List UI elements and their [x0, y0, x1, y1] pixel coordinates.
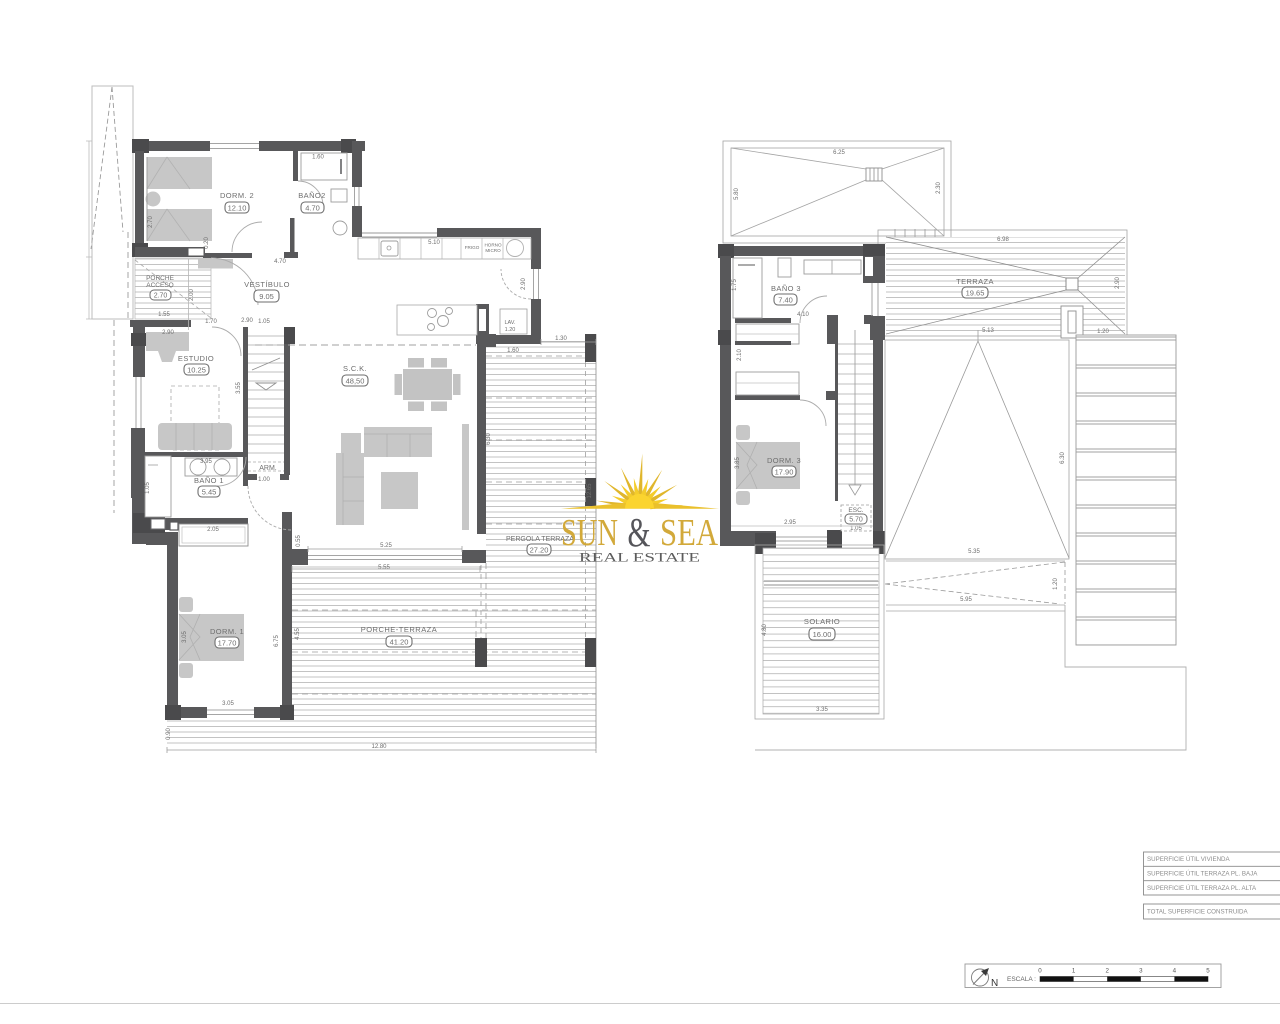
svg-text:3.35: 3.35	[816, 707, 828, 713]
svg-text:REAL ESTATE: REAL ESTATE	[579, 551, 701, 565]
svg-text:5.13: 5.13	[982, 328, 994, 334]
svg-text:SUN: SUN	[561, 512, 618, 554]
svg-text:5.95: 5.95	[960, 597, 972, 603]
svg-text:2.90: 2.90	[521, 278, 527, 290]
svg-text:S.C.K.: S.C.K.	[343, 364, 367, 373]
svg-text:ESCALA :: ESCALA :	[1007, 976, 1036, 983]
svg-text:12.10: 12.10	[228, 204, 247, 213]
svg-text:27.20: 27.20	[530, 546, 549, 555]
svg-text:12.80: 12.80	[371, 744, 387, 750]
svg-text:0.20: 0.20	[204, 237, 210, 249]
svg-text:&: &	[628, 509, 651, 555]
svg-text:1.20: 1.20	[1097, 329, 1109, 335]
svg-text:SUPERFICIE ÚTIL VIVIENDA: SUPERFICIE ÚTIL VIVIENDA	[1147, 856, 1231, 863]
svg-text:2.05: 2.05	[207, 527, 219, 533]
svg-text:1.00: 1.00	[258, 477, 270, 483]
svg-text:5.55: 5.55	[378, 565, 390, 571]
svg-text:FRIGO: FRIGO	[465, 245, 480, 250]
svg-text:1.05: 1.05	[258, 319, 270, 325]
svg-text:48,50: 48,50	[346, 377, 365, 386]
svg-text:0.90: 0.90	[166, 728, 172, 740]
svg-text:4.10: 4.10	[797, 312, 809, 318]
svg-text:DORM. 2: DORM. 2	[220, 191, 254, 200]
svg-text:2: 2	[1105, 968, 1109, 975]
svg-text:3.05: 3.05	[182, 631, 188, 643]
svg-text:5: 5	[1206, 968, 1210, 975]
svg-text:2.90: 2.90	[241, 318, 253, 324]
svg-text:MICRO: MICRO	[485, 248, 501, 253]
svg-text:5.80: 5.80	[734, 188, 740, 200]
svg-text:ESC.: ESC.	[848, 507, 863, 514]
svg-text:PORCHE-TERRAZA: PORCHE-TERRAZA	[361, 625, 438, 634]
svg-text:BAÑO2: BAÑO2	[298, 191, 325, 200]
svg-text:6.75: 6.75	[274, 635, 280, 647]
svg-text:1.05: 1.05	[850, 526, 862, 532]
svg-text:6.30: 6.30	[486, 433, 492, 445]
svg-text:4: 4	[1173, 968, 1177, 975]
svg-text:2.10: 2.10	[737, 349, 743, 361]
svg-text:2.70: 2.70	[148, 216, 154, 228]
svg-text:6.25: 6.25	[833, 150, 845, 156]
svg-text:4.70: 4.70	[305, 204, 320, 213]
svg-text:3.95: 3.95	[200, 459, 212, 465]
svg-text:SOLARIO: SOLARIO	[804, 617, 840, 626]
svg-text:4.80: 4.80	[762, 624, 768, 636]
svg-text:HORNO: HORNO	[484, 243, 502, 248]
svg-text:12.65: 12.65	[587, 483, 593, 499]
svg-text:LAV.: LAV.	[504, 320, 515, 326]
svg-text:2.90: 2.90	[162, 330, 174, 336]
svg-text:5.10: 5.10	[428, 240, 440, 246]
svg-text:10.25: 10.25	[187, 366, 206, 375]
svg-text:6.98: 6.98	[997, 237, 1009, 243]
svg-text:0.55: 0.55	[296, 535, 302, 547]
svg-text:7.40: 7.40	[778, 296, 793, 305]
svg-text:2.95: 2.95	[784, 520, 796, 526]
svg-text:41.20: 41.20	[390, 638, 409, 647]
svg-text:3.85: 3.85	[735, 457, 741, 469]
svg-text:ACCESO: ACCESO	[146, 282, 173, 289]
svg-text:ESTUDIO: ESTUDIO	[178, 354, 214, 363]
svg-text:5.35: 5.35	[968, 549, 980, 555]
svg-text:19.65: 19.65	[966, 289, 985, 298]
svg-text:1.70: 1.70	[205, 319, 217, 325]
svg-text:3.05: 3.05	[222, 701, 234, 707]
svg-text:2.90: 2.90	[1115, 277, 1121, 289]
svg-text:1.60: 1.60	[312, 155, 324, 161]
svg-text:2.70: 2.70	[154, 293, 168, 300]
svg-text:2.00: 2.00	[189, 289, 195, 301]
svg-text:5.45: 5.45	[202, 488, 217, 497]
svg-text:2.30: 2.30	[936, 182, 942, 194]
svg-text:VESTÍBULO: VESTÍBULO	[244, 280, 290, 289]
svg-text:6.30: 6.30	[1060, 452, 1066, 464]
svg-text:0: 0	[1038, 968, 1042, 975]
svg-text:4.55: 4.55	[295, 628, 301, 640]
svg-text:BAÑO 3: BAÑO 3	[771, 284, 801, 293]
svg-text:5.70: 5.70	[849, 517, 863, 524]
svg-text:5.25: 5.25	[380, 543, 392, 549]
svg-text:DORM. 3: DORM. 3	[767, 456, 801, 465]
svg-text:17.90: 17.90	[775, 468, 794, 477]
svg-text:PORCHE: PORCHE	[146, 275, 174, 282]
svg-text:N: N	[991, 978, 998, 989]
svg-text:1.20: 1.20	[1053, 578, 1059, 590]
svg-text:SUPERFICIE ÚTIL TERRAZA PL. BA: SUPERFICIE ÚTIL TERRAZA PL. BAJA	[1147, 870, 1258, 877]
svg-text:BAÑO 1: BAÑO 1	[194, 476, 224, 485]
svg-text:16.00: 16.00	[813, 630, 832, 639]
svg-text:9.05: 9.05	[259, 292, 274, 301]
svg-text:3: 3	[1139, 968, 1143, 975]
svg-text:1.60: 1.60	[507, 348, 519, 354]
svg-text:17.70: 17.70	[218, 639, 237, 648]
svg-text:3.55: 3.55	[236, 382, 242, 394]
svg-text:TOTAL SUPERFICIE CONSTRUIDA: TOTAL SUPERFICIE CONSTRUIDA	[1147, 909, 1248, 916]
svg-text:TERRAZA: TERRAZA	[956, 277, 994, 286]
svg-text:ARM.: ARM.	[259, 465, 277, 472]
svg-text:1.20: 1.20	[505, 327, 516, 333]
svg-text:SEA: SEA	[660, 512, 718, 554]
svg-text:1: 1	[1072, 968, 1076, 975]
svg-text:DORM. 1: DORM. 1	[210, 627, 244, 636]
svg-text:1.55: 1.55	[158, 312, 170, 318]
svg-text:1.75: 1.75	[732, 279, 738, 291]
svg-text:1.05: 1.05	[145, 482, 151, 494]
svg-text:SUPERFICIE ÚTIL TERRAZA PL. AL: SUPERFICIE ÚTIL TERRAZA PL. ALTA	[1147, 885, 1257, 892]
svg-text:1.30: 1.30	[555, 336, 567, 342]
svg-text:4.70: 4.70	[274, 259, 286, 265]
